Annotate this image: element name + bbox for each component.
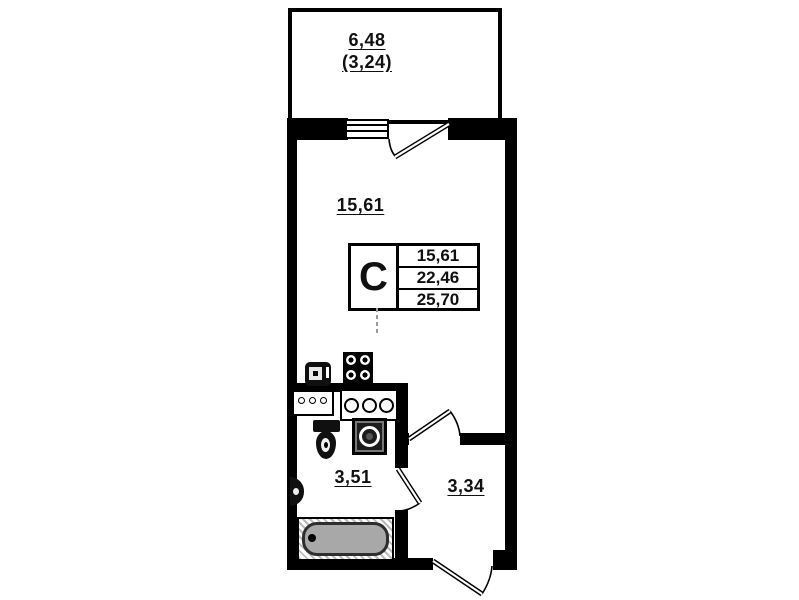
wall-right [505,118,517,570]
window-icon [345,119,389,139]
bathroom-door-icon [398,469,420,511]
table-row: 15,61 [399,246,477,268]
toilet-bowl-icon [316,431,336,459]
stove-icon [343,352,373,384]
unit-info-table: C 15,61 22,46 25,70 [348,243,480,311]
balcony-door-icon [389,124,449,157]
wall-bottom-right-stub [493,550,517,570]
bathtub-icon [297,517,394,561]
hob-icon [340,386,398,421]
table-row: 22,46 [399,268,477,290]
wall-partition-lower [395,510,408,558]
balcony-area-secondary-label: (3,24) [318,52,416,73]
counter-icon [292,390,334,416]
bathroom-area-label: 3,51 [322,467,384,488]
unit-type-cell: C [351,246,399,308]
wall-hall-top-stub [395,433,409,445]
kitchen-sink-icon [305,362,331,386]
floor-plan: 6,48 (3,24) 15,61 C 15,61 22,46 25,70 [0,0,799,600]
table-row: 25,70 [399,290,477,310]
window-mullion [347,130,387,132]
washing-machine-icon [352,418,387,455]
room-area-label: 15,61 [318,195,403,216]
bathtub-drain [308,534,316,542]
room-door-icon [409,411,460,439]
unit-area-rows: 15,61 22,46 25,70 [399,246,477,308]
window-mullion [347,124,387,126]
wall-sink-icon [290,477,304,506]
balcony-area-label: 6,48 [322,30,412,51]
wall-hall-top [460,433,505,445]
hall-area-label: 3,34 [430,476,502,497]
entrance-door-icon [433,561,492,594]
